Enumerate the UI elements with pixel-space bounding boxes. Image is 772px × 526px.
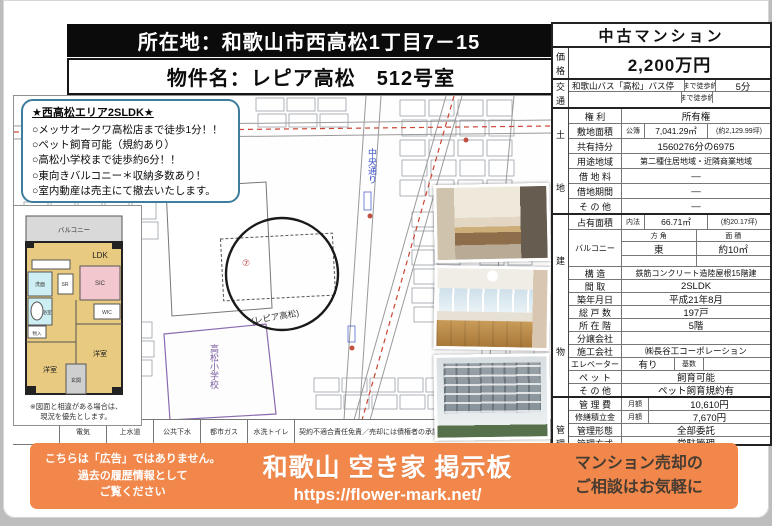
banner-cta: マンション売却の ご相談はお気軽に xyxy=(540,452,738,500)
floorplan-drawing: バルコニー LDK SR 洗面 浴室 SIC WIC 物入 洋室 洋室 玄関 xyxy=(14,206,141,425)
panel-row: エレベーター有り基数 xyxy=(569,357,770,370)
panel-cell: 197戸 xyxy=(621,306,770,318)
map-parcel xyxy=(460,160,485,176)
footer-banner: こちらは「広告」ではありません。過去の履歴情報としてご覧ください 和歌山 空き家… xyxy=(30,443,738,509)
map-parcel xyxy=(318,98,346,111)
map-road-label: 中央通り xyxy=(367,147,377,184)
banner-disclaimer-line: こちらは「広告」ではありません。 xyxy=(30,451,235,468)
floorplan-closet-label: 物入 xyxy=(33,330,42,337)
highlight-item: ○メッサオークワ高松店まで徒歩1分！！ xyxy=(32,123,229,138)
floorplan-east-room-label: 洋室 xyxy=(93,349,107,358)
map-parcel xyxy=(258,114,286,127)
panel-section: 交通和歌山バス「高松」バス停まで徒歩約5分まで徒歩約 xyxy=(553,78,770,107)
panel-row: 修繕積立金月額7,670円 xyxy=(569,410,770,423)
panel-row: 施工会社㈱長谷工コーポレーション xyxy=(569,344,770,357)
map-parcel xyxy=(372,395,397,409)
banner-cta-line1: マンション売却の xyxy=(540,452,738,476)
panel-row-label: 占有面積 xyxy=(569,215,621,229)
panel-section: 建物占有面積内法66.71㎡(約20.17坪)バルコニー方 角面 積東約10㎡構… xyxy=(553,213,770,396)
banner-disclaimer-line: ご覧ください xyxy=(30,484,235,501)
panel-row-subgroup: 方 角面 積東約10㎡ xyxy=(621,230,770,266)
panel-row-label: 借 地 料 xyxy=(569,169,621,183)
panel-section-rows: 2,200万円 xyxy=(569,48,770,78)
utility-cell: 水洗トイレ xyxy=(248,419,295,445)
panel-row: 方 角面 積 xyxy=(622,230,770,241)
panel-cell: 平成21年8月 xyxy=(621,293,770,305)
utility-cell: 公共下水 xyxy=(154,419,201,445)
highlight-item: ○ペット飼育可能（規約あり） xyxy=(32,138,229,153)
panel-cell xyxy=(569,92,681,103)
panel-cell: 7,670円 xyxy=(648,411,770,423)
banner-url: https://flower-mark.net/ xyxy=(235,485,539,505)
banner-center: 和歌山 空き家 掲示板 https://flower-mark.net/ xyxy=(235,448,539,505)
floorplan-entrance-label: 玄関 xyxy=(71,377,81,384)
map-parcel xyxy=(458,140,483,156)
panel-section-rows: 和歌山バス「高松」バス停まで徒歩約5分まで徒歩約 xyxy=(569,80,770,107)
panel-row: 敷地面積公簿7,041.29㎡(約2,129.99坪) xyxy=(569,123,770,138)
floorplan-sr-label: SR xyxy=(62,282,69,288)
panel-row-label: 総 戸 数 xyxy=(569,306,621,318)
banner-cta-line2: ご相談はお気軽に xyxy=(540,476,738,500)
panel-section-spine: 土地 xyxy=(553,109,569,213)
panel-row: 間 取2SLDK xyxy=(569,279,770,292)
panel-row-label: 築年月日 xyxy=(569,293,621,305)
panel-row: 権 利所有権 xyxy=(569,109,770,123)
highlight-item: ○東向きバルコニー＊収納多数あり！ xyxy=(32,169,229,184)
panel-cell xyxy=(712,92,770,103)
spine-char: 管 xyxy=(556,423,565,436)
panel-section: 価格2,200万円 xyxy=(553,46,770,78)
map-parcel xyxy=(289,114,317,127)
floorplan-note-line2: 現況を優先とします。 xyxy=(40,412,111,421)
floorplan-balcony-label: バルコニー xyxy=(58,226,90,234)
panel-cell: 第二種住居地域・近隣商業地域 xyxy=(621,154,770,168)
panel-cell: ㈱長谷工コーポレーション xyxy=(621,345,770,357)
map-parcel xyxy=(256,98,284,111)
map-parcel xyxy=(412,250,434,265)
panel-cell: 全部委託 xyxy=(621,424,770,436)
map-parcel xyxy=(287,98,315,111)
panel-cell: ― xyxy=(621,169,770,183)
panel-row-label: エレベーター xyxy=(569,358,621,370)
panel-row: 借地期間― xyxy=(569,183,770,198)
panel-cell: (約2,129.99坪) xyxy=(707,124,770,138)
map-parcel xyxy=(412,212,434,227)
panel-cell xyxy=(622,256,696,266)
panel-cell: ― xyxy=(621,199,770,213)
panel-row: 築年月日平成21年8月 xyxy=(569,292,770,305)
panel-section-spine: 建物 xyxy=(553,215,569,396)
panel-cell: 所有権 xyxy=(621,109,770,123)
map-parcel xyxy=(487,100,512,116)
map-school-label: 高松小学校 xyxy=(209,343,219,390)
panel-section-rows: 管 理 費月額10,610円修繕積立金月額7,670円管理形態全部委託管理方式常… xyxy=(569,398,770,446)
flyer-page: 所在地： 和歌山市西高松1丁目7－15 物件名： レピア高松 512号室 高松小… xyxy=(3,0,769,518)
panel-cell xyxy=(621,332,770,344)
panel-row-label: 権 利 xyxy=(569,109,621,123)
address-value: 和歌山市西高松1丁目7－15 xyxy=(222,26,481,55)
photo-living-room xyxy=(433,265,550,351)
map-parcel xyxy=(344,395,369,409)
panel-section-rows: 占有面積内法66.71㎡(約20.17坪)バルコニー方 角面 積東約10㎡構 造… xyxy=(569,215,770,396)
panel-row-label: 分譲会社 xyxy=(569,332,621,344)
panel-cell: 7,041.29㎡ xyxy=(644,124,707,138)
banner-disclaimer-line: 過去の履歴情報として xyxy=(30,468,235,485)
panel-row: 和歌山バス「高松」バス停まで徒歩約5分 xyxy=(569,80,770,91)
panel-row-label: 借地期間 xyxy=(569,184,621,198)
map-parcel xyxy=(316,395,341,409)
panel-cell: 方 角 xyxy=(622,230,696,241)
map-parcel xyxy=(314,378,339,392)
panel-row-label: そ の 他 xyxy=(569,384,621,396)
banner-disclaimer: こちらは「広告」ではありません。過去の履歴情報としてご覧ください xyxy=(30,451,235,501)
property-name-value: レピア高松 512号室 xyxy=(251,62,455,91)
map-parcel xyxy=(458,100,483,116)
panel-cell: まで徒歩約 xyxy=(681,92,712,103)
panel-cell xyxy=(696,256,771,266)
panel-row: 管理形態全部委託 xyxy=(569,423,770,436)
panel-row: 占有面積内法66.71㎡(約20.17坪) xyxy=(569,215,770,229)
panel-section-spine: 管理 xyxy=(553,398,569,446)
floorplan-ldk-label: LDK xyxy=(92,251,108,260)
map-school-parcel xyxy=(164,324,276,420)
banner-title: 和歌山 空き家 掲示板 xyxy=(235,448,539,484)
panel-section-spine: 価格 xyxy=(553,48,569,78)
panel-cell: 5分 xyxy=(715,80,770,91)
panel-cell: 66.71㎡ xyxy=(644,215,707,229)
floorplan-west-room-label: 洋室 xyxy=(43,365,57,374)
floorplan-wash-label: 洗面 xyxy=(35,281,45,288)
panel-cell: 面 積 xyxy=(696,230,771,241)
panel-cell: ― xyxy=(621,184,770,198)
panel-cell: ペット飼育規約有 xyxy=(621,384,770,396)
photo-stack xyxy=(432,184,551,440)
spine-char: 格 xyxy=(556,64,565,77)
panel-row: 構 造鉄筋コンクリート造陸屋根15階建 xyxy=(569,266,770,279)
highlight-item: ○高松小学校まで徒歩約6分！！ xyxy=(32,153,229,168)
floorplan-bath-label: 浴室 xyxy=(43,309,52,316)
panel-cell: 約10㎡ xyxy=(696,242,771,255)
map-parcel xyxy=(370,378,395,392)
spine-char: 通 xyxy=(556,94,565,107)
spine-char: 地 xyxy=(556,181,565,194)
panel-cell: 月額 xyxy=(621,398,648,410)
map-parcel xyxy=(400,395,425,409)
property-name-label: 物件名： xyxy=(167,62,251,91)
spine-char: 土 xyxy=(556,128,565,141)
map-parcel xyxy=(400,100,425,116)
spec-panel-rows: 価格2,200万円交通和歌山バス「高松」バス停まで徒歩約5分まで徒歩約土地権 利… xyxy=(553,46,770,446)
highlight-item: ○室内動産は売主にて撤去いたします。 xyxy=(32,184,229,199)
panel-row: 管 理 費月額10,610円 xyxy=(569,398,770,410)
highlights-title: ★西高松エリア2SLDK★ xyxy=(32,106,229,122)
panel-row-label: 所 在 階 xyxy=(569,319,621,331)
panel-row: 用途地域第二種住居地域・近隣商業地域 xyxy=(569,153,770,168)
panel-row xyxy=(622,255,770,266)
spine-char: 価 xyxy=(556,50,565,63)
panel-section: 土地権 利所有権敷地面積公簿7,041.29㎡(約2,129.99坪)共有持分1… xyxy=(553,107,770,213)
panel-row: 分譲会社 xyxy=(569,331,770,344)
panel-cell: 月額 xyxy=(621,411,648,423)
panel-row-label: 修繕積立金 xyxy=(569,411,621,423)
map-parcel xyxy=(400,140,425,156)
map-property-marker: ⑦ xyxy=(242,258,250,268)
property-name-header: 物件名： レピア高松 512号室 xyxy=(67,58,555,95)
panel-cell: 有り xyxy=(621,358,674,370)
floorplan-panel: バルコニー LDK SR 洗面 浴室 SIC WIC 物入 洋室 洋室 玄関 xyxy=(13,205,142,426)
panel-row: そ の 他― xyxy=(569,198,770,213)
map-parcel xyxy=(412,288,434,303)
panel-row-label: 用途地域 xyxy=(569,154,621,168)
panel-row: 所 在 階5階 xyxy=(569,318,770,331)
panel-cell: 飼育可能 xyxy=(621,371,770,383)
floorplan-wic-label: WIC xyxy=(102,310,112,316)
address-header: 所在地： 和歌山市西高松1丁目7－15 xyxy=(67,24,551,57)
panel-row: バルコニー方 角面 積東約10㎡ xyxy=(569,229,770,266)
floorplan-sic-label: SIC xyxy=(95,281,106,287)
panel-cell: 5階 xyxy=(621,319,770,331)
panel-row: まで徒歩約 xyxy=(569,91,770,103)
panel-section-spine: 交通 xyxy=(553,80,569,107)
spine-char: 交 xyxy=(556,80,565,93)
panel-cell: 内法 xyxy=(621,215,644,229)
panel-cell: 鉄筋コンクリート造陸屋根15階建 xyxy=(621,267,770,279)
panel-row-label: 間 取 xyxy=(569,280,621,292)
panel-row: 2,200万円 xyxy=(569,48,770,78)
floorplan-kitchen-counter xyxy=(32,260,70,269)
panel-row-label: バルコニー xyxy=(569,230,621,266)
spine-char: 建 xyxy=(556,254,565,267)
panel-cell: 1560276分の6975 xyxy=(621,139,770,153)
panel-row-label: 構 造 xyxy=(569,267,621,279)
panel-row-label: 共有持分 xyxy=(569,139,621,153)
panel-row: 共有持分1560276分の6975 xyxy=(569,138,770,153)
panel-row: そ の 他ペット飼育規約有 xyxy=(569,383,770,396)
panel-cell: 公簿 xyxy=(621,124,644,138)
spine-char: 物 xyxy=(556,345,565,358)
panel-row: 借 地 料― xyxy=(569,168,770,183)
photo-building-exterior xyxy=(433,353,550,441)
map-parcel xyxy=(489,160,514,176)
map-property-label: (レピア高松) xyxy=(251,308,300,326)
address-label: 所在地： xyxy=(138,26,222,55)
panel-row-label: ペ ッ ト xyxy=(569,371,621,383)
spec-panel-title: 中古マンション xyxy=(553,24,770,46)
floorplan-bathtub xyxy=(31,302,43,320)
panel-row-label: 施工会社 xyxy=(569,345,621,357)
panel-row-label: そ の 他 xyxy=(569,199,621,213)
panel-cell xyxy=(703,358,770,370)
panel-cell: 2SLDK xyxy=(621,280,770,292)
panel-cell: 2,200万円 xyxy=(569,48,770,78)
panel-cell: (約20.17坪) xyxy=(707,215,770,229)
panel-cell: 和歌山バス「高松」バス停 xyxy=(569,80,684,91)
panel-cell: 10,610円 xyxy=(648,398,770,410)
highlights-box: ★西高松エリア2SLDK★ ○メッサオークワ高松店まで徒歩1分！！○ペット飼育可… xyxy=(21,99,240,203)
spec-panel: 中古マンション 価格2,200万円交通和歌山バス「高松」バス停まで徒歩約5分まで… xyxy=(551,22,772,446)
map-parcel xyxy=(320,114,348,127)
panel-row: ペ ッ ト飼育可能 xyxy=(569,370,770,383)
map-parcel xyxy=(398,378,423,392)
panel-row-label: 敷地面積 xyxy=(569,124,621,138)
panel-cell: 基数 xyxy=(674,358,703,370)
panel-cell: まで徒歩約 xyxy=(684,80,715,91)
map-parcel xyxy=(402,160,427,176)
panel-row: 東約10㎡ xyxy=(622,241,770,255)
panel-row-label: 管 理 費 xyxy=(569,398,621,410)
photo-kitchen xyxy=(433,183,551,263)
panel-row-label: 管理形態 xyxy=(569,424,621,436)
floorplan-note-line1: ※図面と相違がある場合は、 xyxy=(30,402,122,411)
panel-row: 総 戸 数197戸 xyxy=(569,305,770,318)
utility-cell: 都市ガス xyxy=(201,419,248,445)
panel-cell: 東 xyxy=(622,242,696,255)
panel-section-rows: 権 利所有権敷地面積公簿7,041.29㎡(約2,129.99坪)共有持分156… xyxy=(569,109,770,213)
panel-section: 管理管 理 費月額10,610円修繕積立金月額7,670円管理形態全部委託管理方… xyxy=(553,396,770,446)
